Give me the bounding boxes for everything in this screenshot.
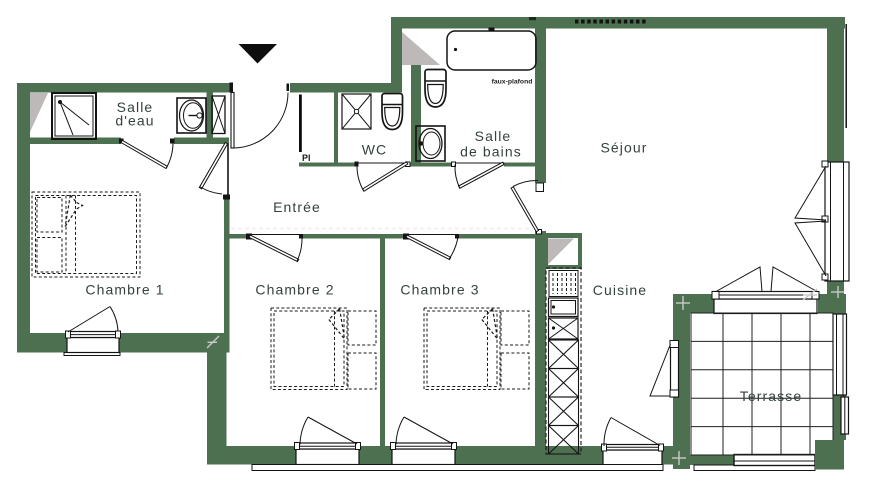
svg-text:WC: WC [362, 142, 388, 158]
svg-text:Cuisine: Cuisine [593, 282, 647, 298]
svg-text:Pl: Pl [302, 153, 311, 163]
svg-text:Terrasse: Terrasse [740, 388, 802, 404]
svg-text:d'eau: d'eau [115, 113, 154, 129]
svg-text:Entrée: Entrée [273, 199, 321, 215]
svg-text:Séjour: Séjour [600, 140, 647, 156]
svg-text:Salle: Salle [475, 128, 512, 144]
svg-text:Chambre 1: Chambre 1 [85, 282, 164, 298]
svg-text:Chambre 2: Chambre 2 [255, 282, 334, 298]
svg-text:faux-plafond: faux-plafond [492, 79, 533, 86]
svg-text:de bains: de bains [460, 144, 522, 160]
svg-text:Chambre 3: Chambre 3 [400, 282, 479, 298]
